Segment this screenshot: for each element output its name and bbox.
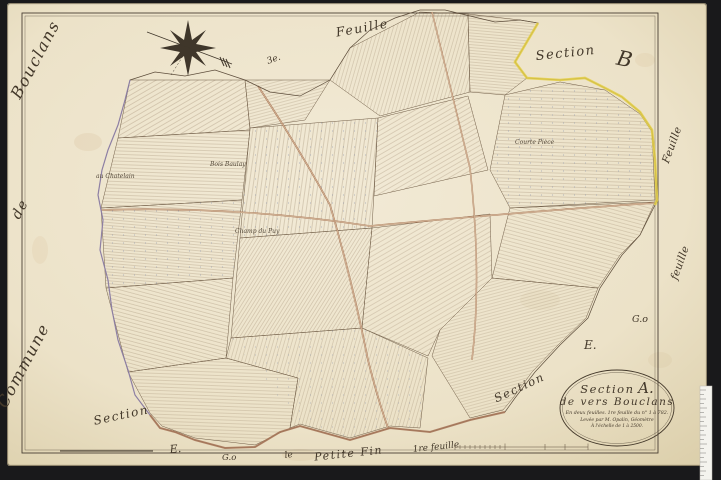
cartouche-line2: de vers Bouclans [560,396,675,408]
cartouche-line5: À l'échelle de 1 à 2500. [590,423,643,429]
letter-e-bottom: E. [168,442,182,456]
lieu-dit-label: Champ du Puy [235,228,280,235]
cartouche-line3: En deux feuilles. 1re feuille du n° 1 à … [565,409,669,416]
letter-e-right: E. [583,338,597,352]
lieu-dit-label: Courte Pièce [515,139,555,146]
map-canvas: Commune de Bouclans Feuille Section B 3e… [0,0,721,480]
letter-go-right: G.o [632,314,648,325]
svg-text:Section A.: Section A. [580,379,654,397]
lieu-dit-label: Bois Baulay [209,161,246,168]
scanned-cadastral-map-sheet: { "labels": { "commune_word1": "Commune"… [0,0,721,480]
lieu-dit-label: au Chatelain [96,173,135,180]
letter-go-bottom: G.o [222,453,236,463]
bottom-le: le [284,450,294,461]
scan-ruler [700,386,712,480]
cartouche-section-word: Section [580,382,634,396]
cartouche-line4: Levée par M. Opalin, Géomètre [579,416,654,423]
cartouche-section-letter: A. [636,379,654,397]
